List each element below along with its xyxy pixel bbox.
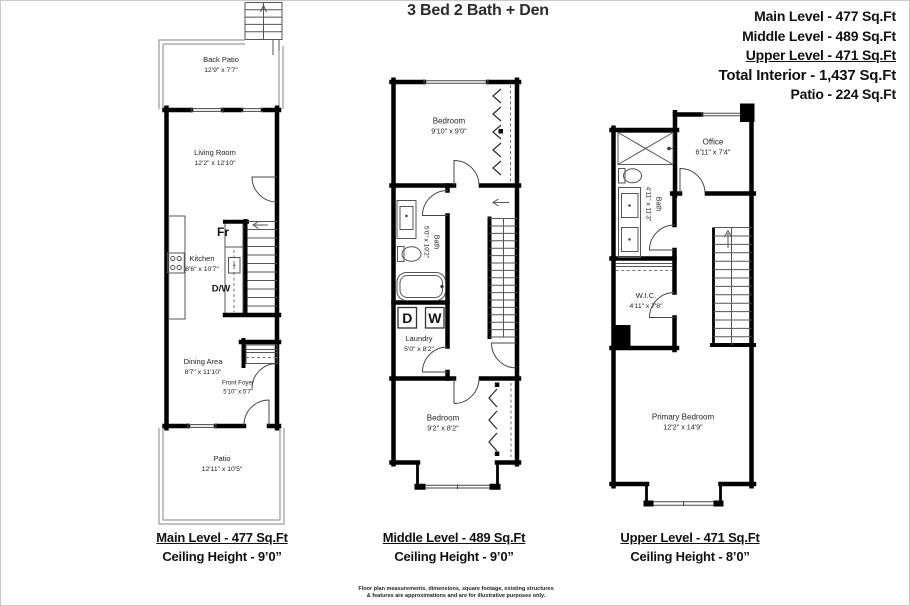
- room-name: Front Foyer: [222, 379, 254, 388]
- summary-total-interior: Total Interior - 1,437 Sq.Ft: [719, 66, 896, 86]
- office-door-arc: [680, 169, 705, 194]
- stove: [167, 253, 184, 273]
- caption-ceiling: Ceiling Height - 9’0”: [156, 549, 287, 564]
- toilet: [398, 247, 405, 262]
- caption-area: Upper Level - 471 Sq.Ft: [620, 530, 759, 545]
- room-dims: 4'11" x 11'3": [644, 187, 653, 222]
- laundry-label: Laundry 5'0" x 8'2": [404, 334, 434, 354]
- bedroom-bottom-door-arc: [454, 379, 479, 404]
- primary-bedroom-label: Primary Bedroom 12'2" x 14'9": [652, 411, 714, 432]
- back-patio-label: Back Patio 12'9" x 7'7": [203, 55, 239, 75]
- area-summary: Main Level - 477 Sq.Ft Middle Level - 48…: [719, 7, 896, 105]
- disclaimer: Floor plan measurements, dimensions, squ…: [358, 586, 553, 599]
- bedroom-top-closet: [493, 85, 511, 182]
- room-name: Patio: [202, 454, 243, 465]
- exterior-stairs: [245, 3, 282, 56]
- dishwasher-label: D/W: [212, 284, 230, 295]
- middle-level-caption: Middle Level - 489 Sq.Ft Ceiling Height …: [383, 530, 526, 564]
- room-dims: 9'10" x 9'0": [431, 127, 466, 137]
- summary-upper-level: Upper Level - 471 Sq.Ft: [719, 46, 896, 66]
- upper-stairs: [712, 228, 754, 346]
- foyer-door-arc: [252, 364, 277, 389]
- summary-middle-level: Middle Level - 489 Sq.Ft: [719, 27, 896, 47]
- room-name: Bedroom: [431, 115, 466, 126]
- room-dims: 12'9" x 7'7": [203, 65, 239, 75]
- living-room-label: Living Room 12'2" x 12'10": [194, 148, 236, 168]
- patio-outline: [159, 428, 284, 524]
- room-dims: 5'0" x 8'2": [404, 344, 434, 354]
- room-dims: 12'11" x 10'5": [202, 464, 243, 474]
- upper-bath-label: Bath 4'11" x 11'3": [644, 187, 663, 222]
- room-name: Living Room: [194, 148, 236, 159]
- room-name: Bath: [431, 226, 441, 258]
- summary-main-level: Main Level - 477 Sq.Ft: [719, 7, 896, 27]
- caption-area: Middle Level - 489 Sq.Ft: [383, 530, 526, 545]
- fridge-label: Fr: [217, 225, 229, 239]
- upper-level-caption: Upper Level - 471 Sq.Ft Ceiling Height -…: [620, 530, 759, 564]
- room-name: Primary Bedroom: [652, 411, 714, 422]
- disclaimer-line-1: Floor plan measurements, dimensions, squ…: [358, 586, 553, 593]
- caption-ceiling: Ceiling Height - 9’0”: [383, 549, 526, 564]
- patio-label: Patio 12'11" x 10'5": [202, 454, 243, 474]
- stair-direction-arrow: [725, 231, 732, 249]
- dryer-label: D: [402, 310, 412, 326]
- bedroom-top-door-arc: [454, 160, 479, 185]
- main-stairs: [225, 221, 279, 315]
- main-level-caption: Main Level - 477 Sq.Ft Ceiling Height - …: [156, 530, 287, 564]
- room-dims: 12'2" x 14'9": [652, 423, 714, 433]
- room-dims: 4'11" x 7'8": [630, 301, 663, 311]
- room-dims: 5'0" x 10'2": [422, 226, 431, 258]
- caption-area: Main Level - 477 Sq.Ft: [156, 530, 287, 545]
- room-name: Laundry: [404, 334, 434, 345]
- room-name: Back Patio: [203, 55, 239, 66]
- kitchen-label: Kitchen 8'6" x 10'7": [185, 254, 219, 274]
- room-name: Bath: [653, 187, 663, 222]
- room-dims: 8'7" x 11'10": [184, 367, 223, 377]
- bath-door-arc: [650, 225, 675, 250]
- disclaimer-line-2: & features are approximations and are fo…: [358, 593, 553, 600]
- main-level-plan: [159, 3, 284, 525]
- wic-shelf: [616, 264, 673, 271]
- middle-bath-label: Bath 5'0" x 10'2": [422, 226, 441, 258]
- room-dims: 6'11" x 7'4": [696, 148, 731, 158]
- room-name: Kitchen: [185, 254, 219, 265]
- toilet: [619, 169, 626, 184]
- upper-windows: [654, 113, 741, 506]
- dining-area-label: Dining Area 8'7" x 11'10": [184, 357, 223, 377]
- office-label: Office 6'11" x 7'4": [696, 136, 731, 157]
- washer-label: W: [428, 310, 441, 326]
- room-dims: 8'6" x 10'7": [185, 264, 219, 274]
- stair-top-door-arc: [252, 177, 277, 202]
- room-name: Office: [696, 136, 731, 147]
- bedroom-bottom-label: Bedroom 9'2" x 8'2": [427, 412, 459, 433]
- room-name: W.I.C.: [630, 291, 663, 302]
- bath-door-arc: [423, 191, 448, 216]
- stair-direction-arrow: [253, 222, 268, 229]
- middle-door-arcs: [423, 160, 517, 403]
- page-title: 3 Bed 2 Bath + Den: [407, 2, 549, 20]
- room-name: Dining Area: [184, 357, 223, 368]
- room-dims: 5'10" x 5'7": [222, 388, 254, 396]
- hall-door-arc: [492, 343, 517, 368]
- foyer-closet: [241, 340, 279, 366]
- front-foyer-label: Front Foyer 5'10" x 5'7": [222, 379, 254, 396]
- bedroom-top-label: Bedroom 9'10" x 9'0": [431, 115, 466, 136]
- room-dims: 12'2" x 12'10": [194, 158, 236, 168]
- stair-direction-arrow: [493, 199, 509, 206]
- bedroom-bottom-closet: [489, 383, 511, 458]
- room-name: Bedroom: [427, 412, 459, 423]
- front-door-arc: [244, 400, 269, 425]
- floorplan-sheet: 3 Bed 2 Bath + Den Main Level - 477 Sq.F…: [0, 0, 910, 606]
- wic-label: W.I.C. 4'11" x 7'8": [630, 291, 663, 311]
- caption-ceiling: Ceiling Height - 8’0”: [620, 549, 759, 564]
- summary-patio: Patio - 224 Sq.Ft: [719, 85, 896, 105]
- middle-stairs: [490, 199, 518, 337]
- room-dims: 9'2" x 8'2": [427, 424, 459, 434]
